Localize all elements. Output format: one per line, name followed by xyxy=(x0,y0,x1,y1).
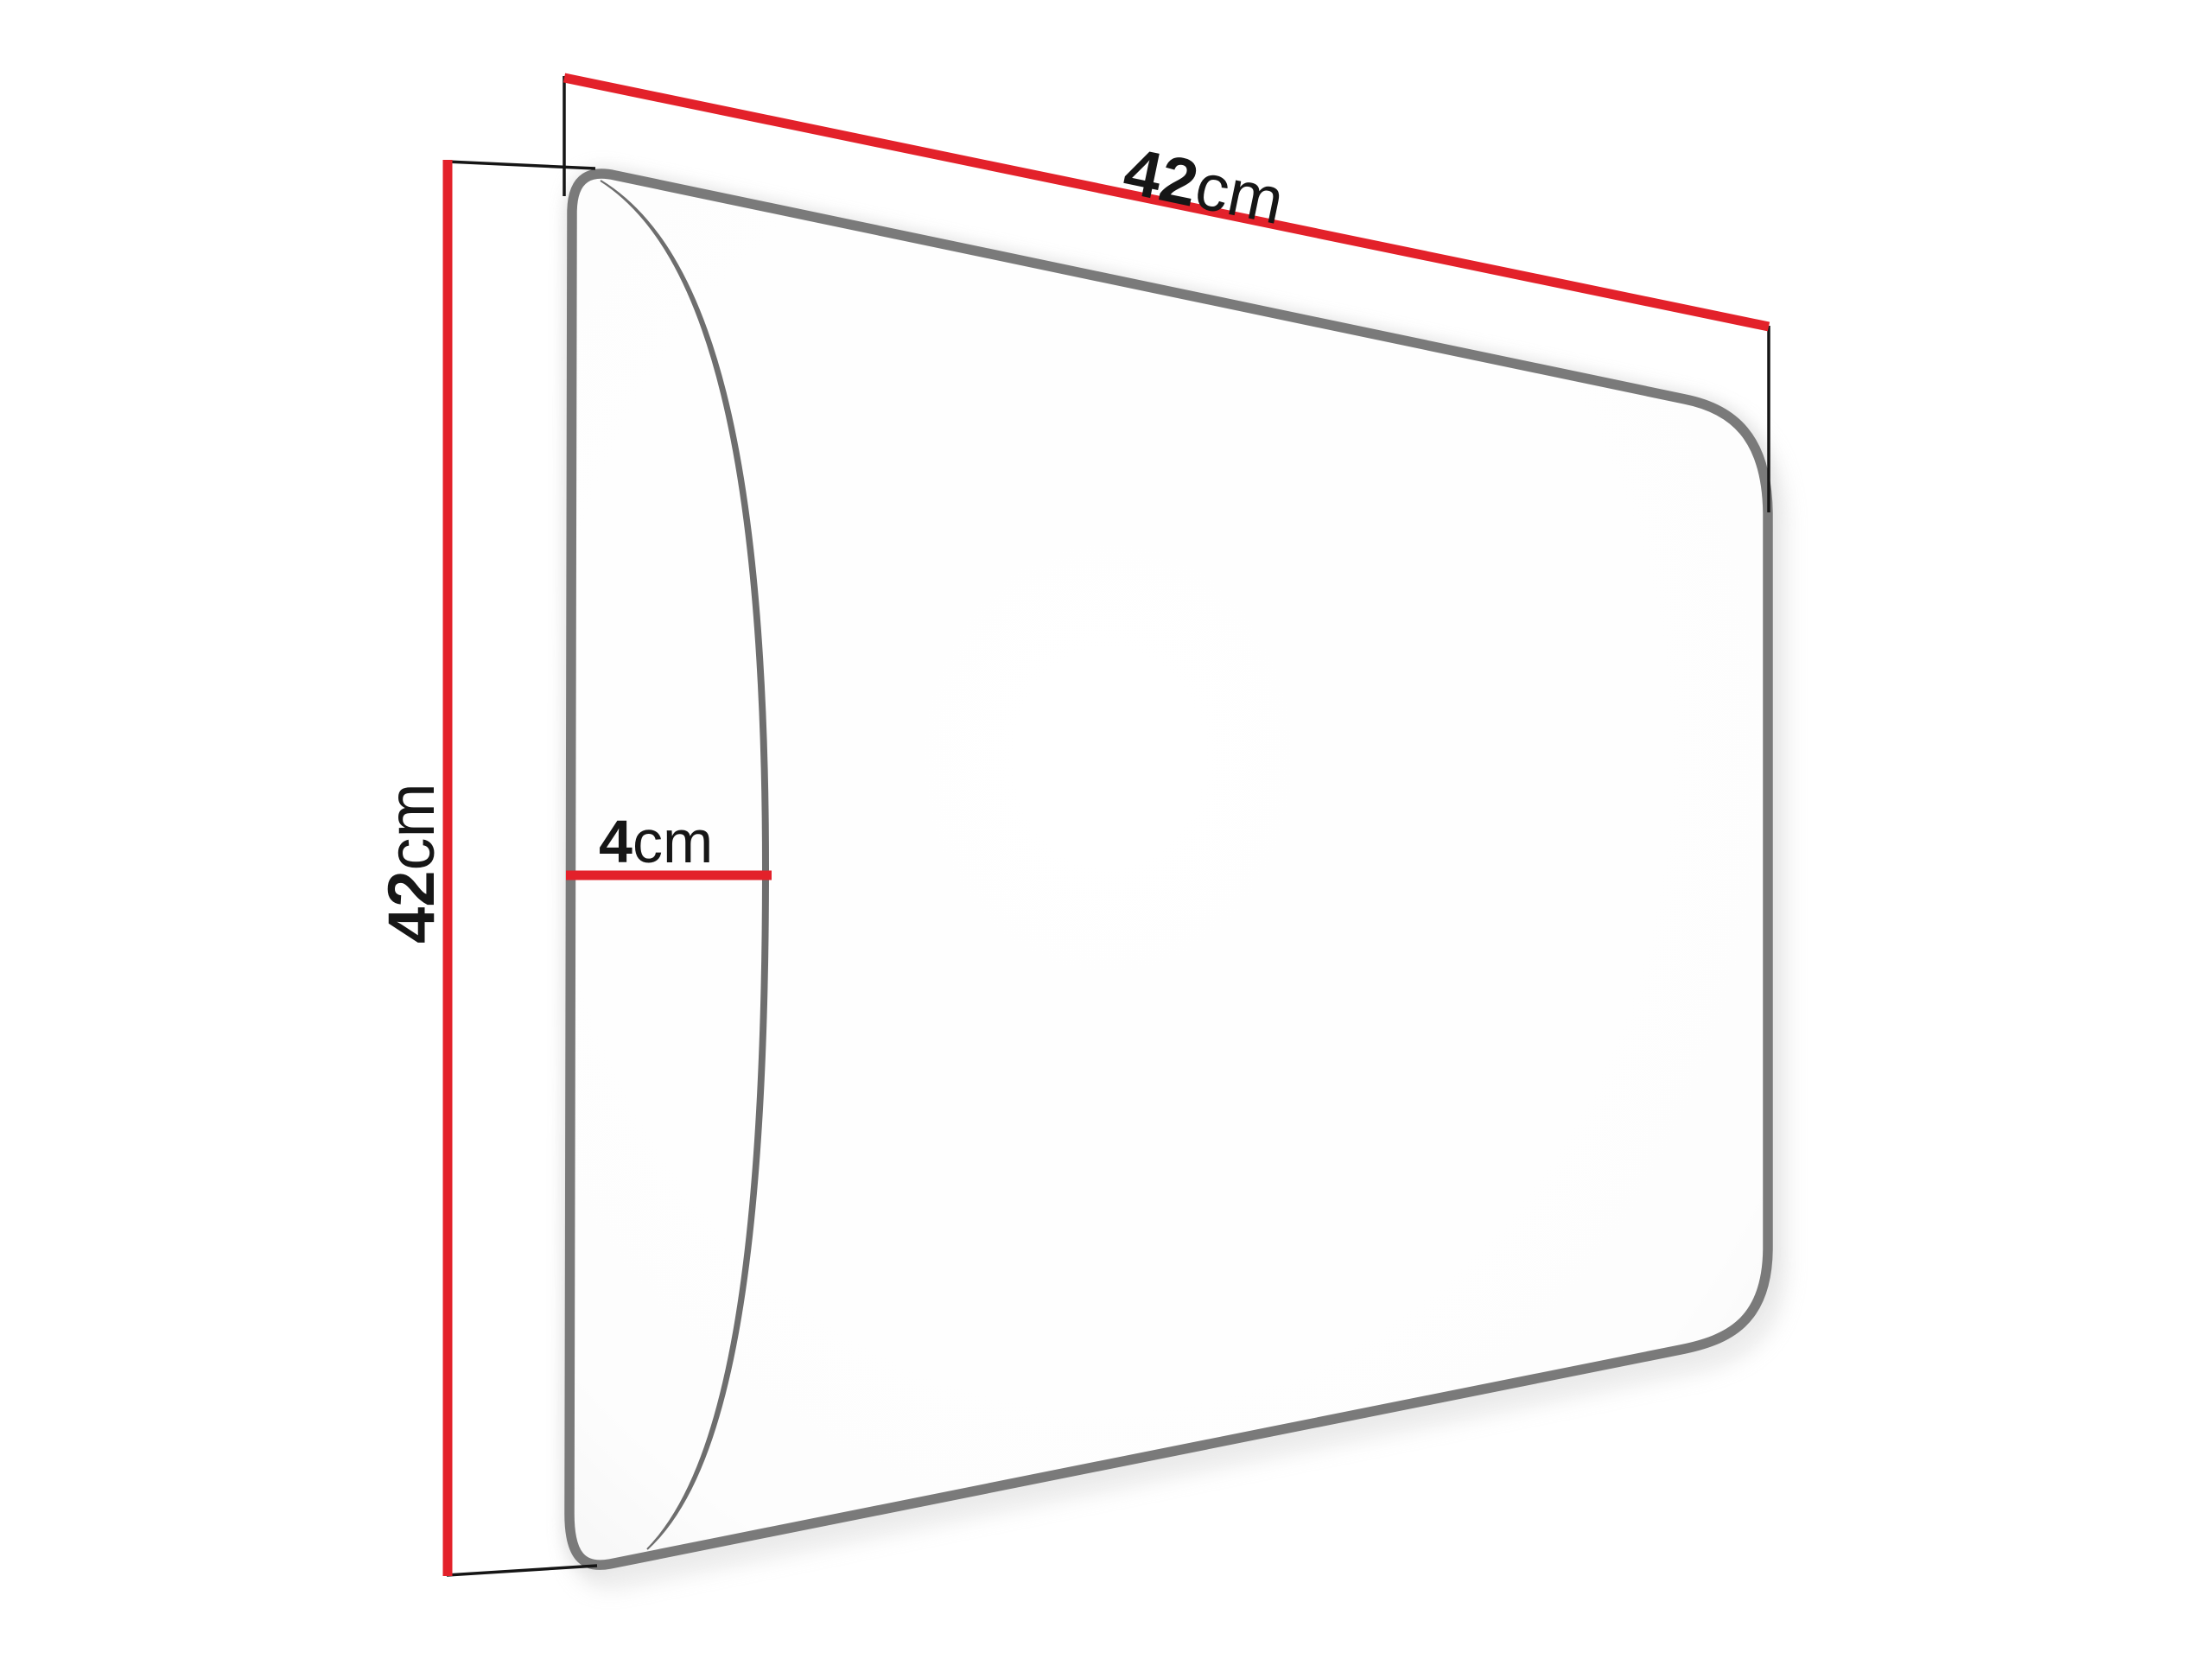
dimension-diagram-canvas: 42cm 42cm 4cm xyxy=(0,0,2212,1659)
depth-value: 4 xyxy=(599,808,632,875)
width-unit: cm xyxy=(1189,149,1289,239)
panel-dimension-diagram: 42cm 42cm 4cm xyxy=(0,0,2212,1659)
depth-unit: cm xyxy=(632,808,713,875)
extension-line-bottom-left-horizontal xyxy=(447,1566,597,1575)
height-dimension-label: 42cm xyxy=(375,783,448,944)
width-dimension-label: 42cm xyxy=(1118,134,1290,238)
panel-outline xyxy=(569,174,1768,1565)
height-value: 42 xyxy=(375,870,448,944)
extension-line-top-left-horizontal xyxy=(447,162,595,168)
depth-dimension-label: 4cm xyxy=(599,808,713,875)
height-unit: cm xyxy=(375,783,448,870)
